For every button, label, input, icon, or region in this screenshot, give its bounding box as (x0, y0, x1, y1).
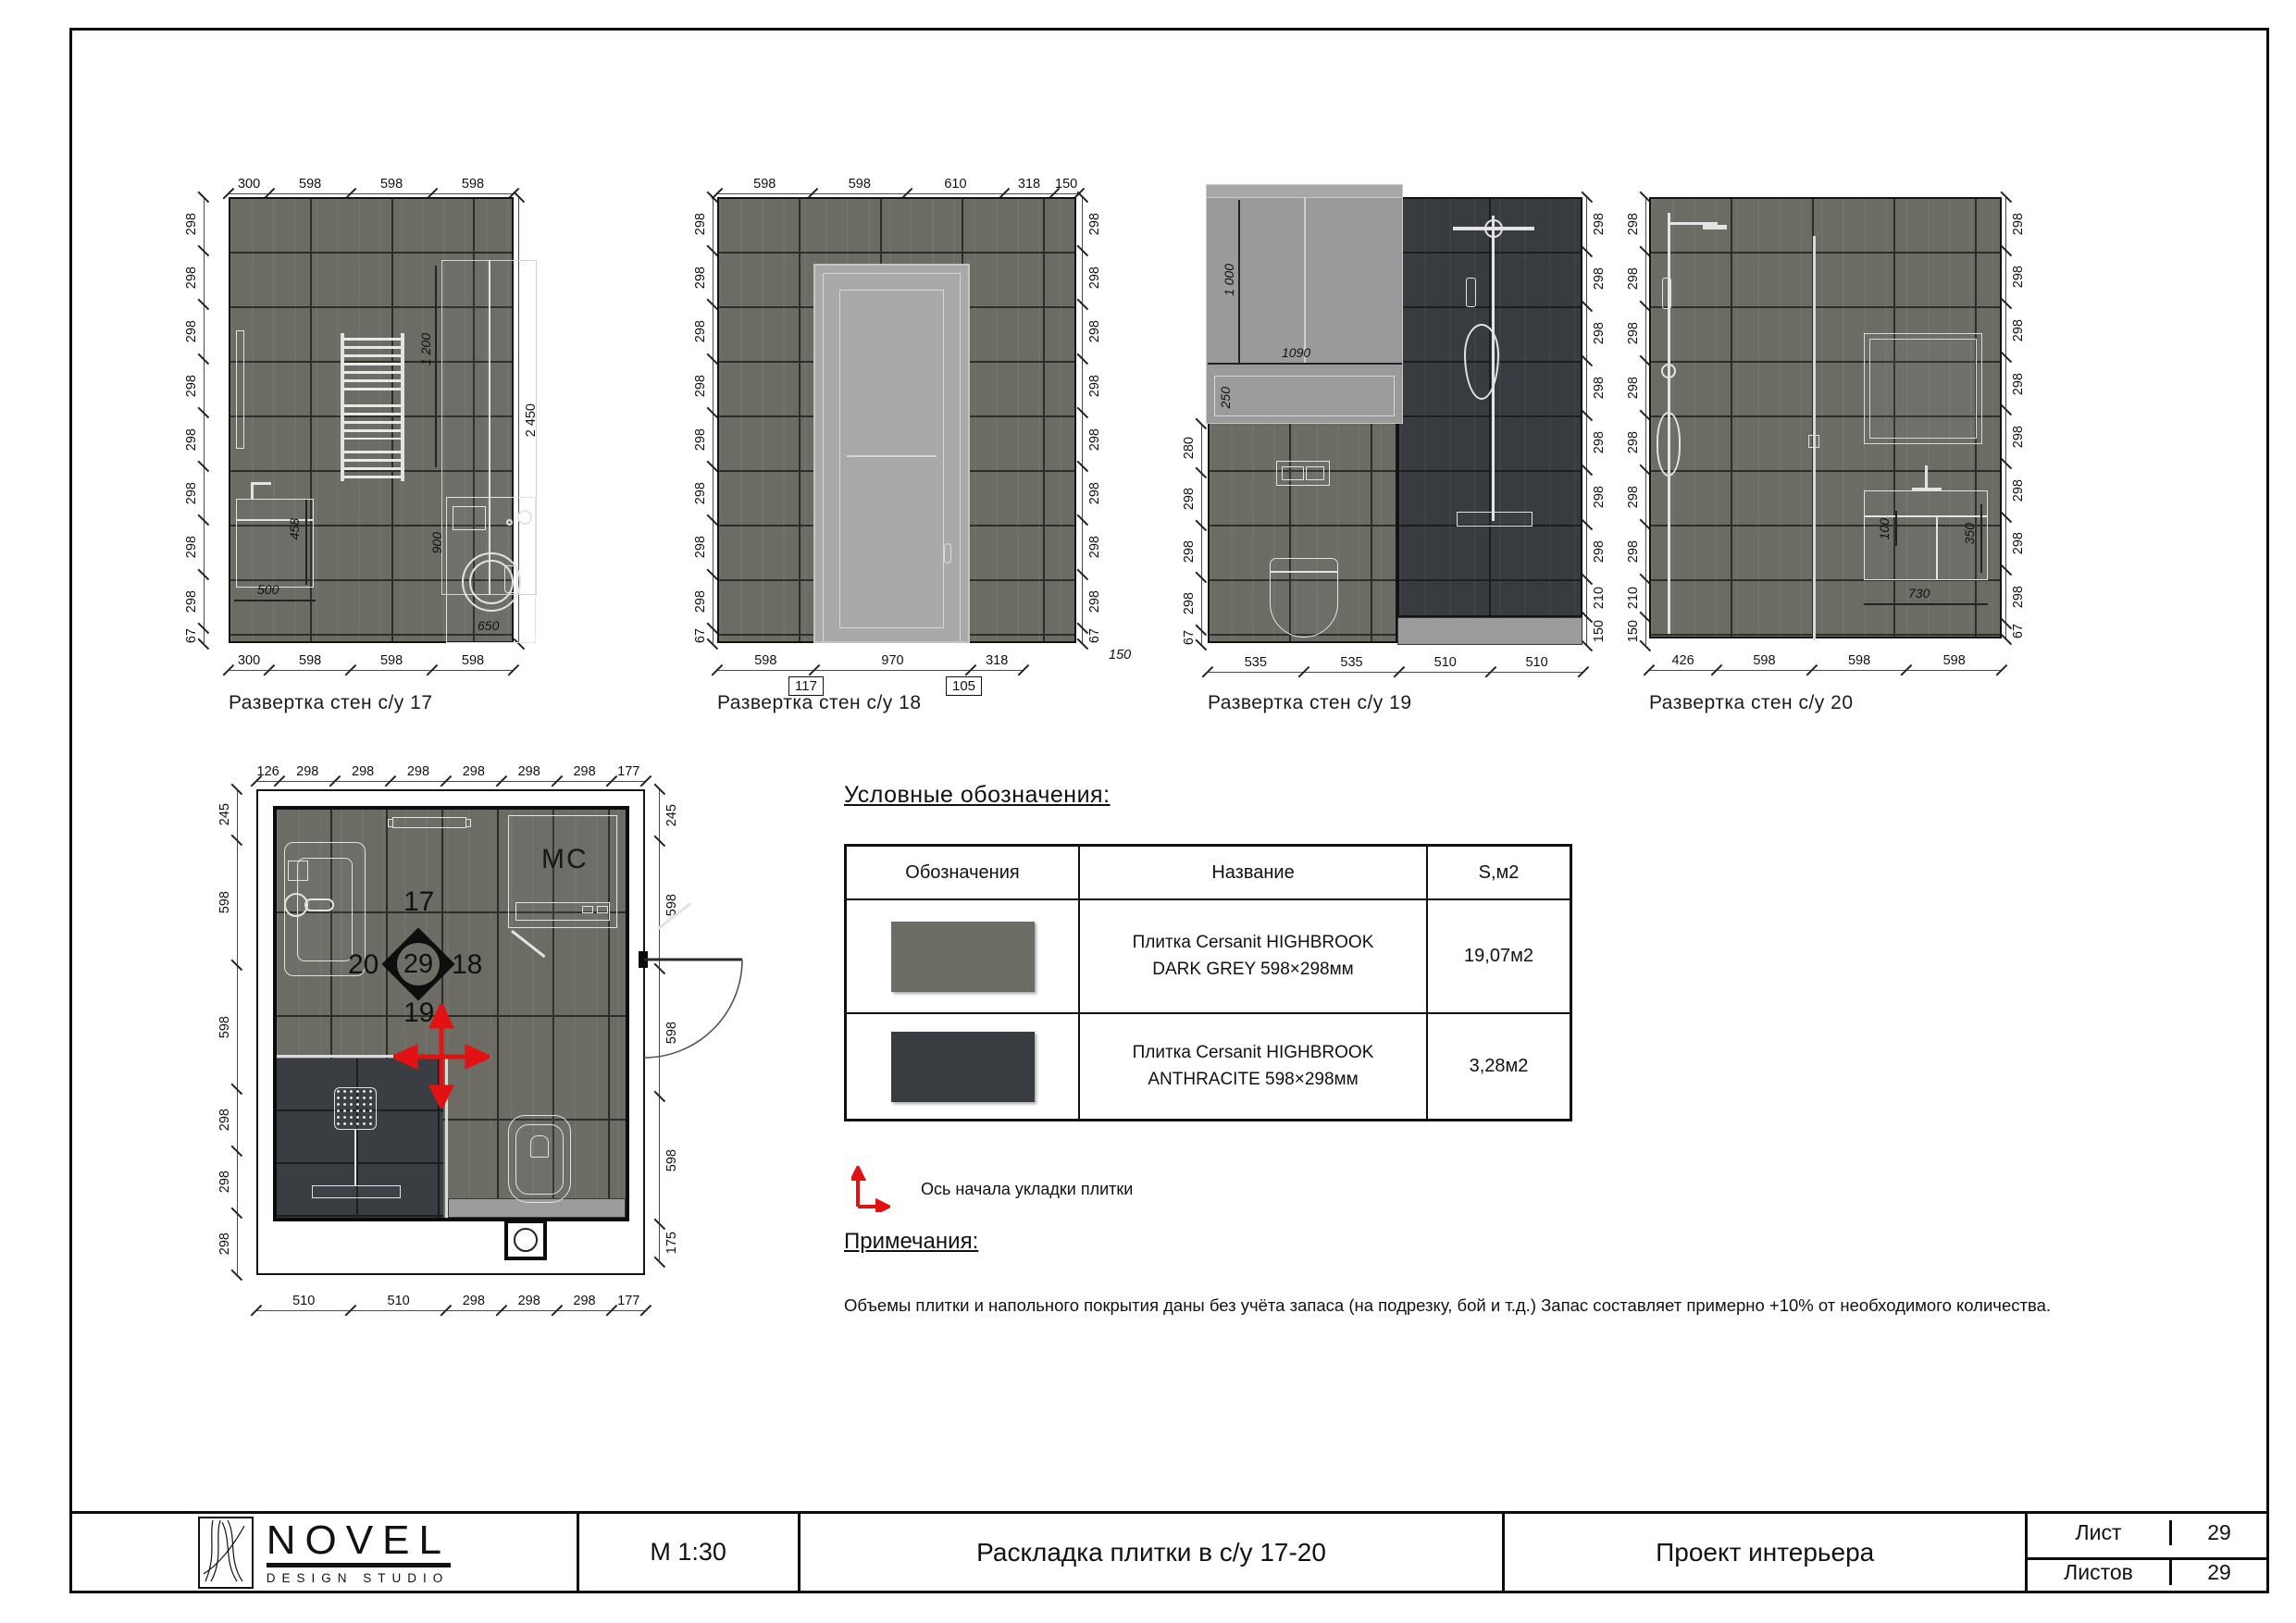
novel-logo: NOVEL DESIGN STUDIO (198, 1517, 451, 1589)
notes-text: Объемы плитки и напольного покрытия даны… (844, 1294, 2214, 1318)
door-swing-icon (639, 944, 759, 1073)
view-marker-left: 20 (348, 949, 379, 981)
legend-title: Условные обозначения: (844, 782, 1111, 809)
e17-caption: Развертка стен с/у 17 (229, 692, 433, 714)
logo-subtitle: DESIGN STUDIO (267, 1571, 451, 1585)
e20-wall-tiles (1649, 197, 2002, 638)
legend-row-swatch (846, 899, 1079, 1013)
sheets-total: 29 (2169, 1557, 2266, 1585)
title-block: NOVEL DESIGN STUDIO М 1:30 Раскладка пли… (69, 1511, 2269, 1593)
flush-plate-icon (1306, 466, 1324, 480)
legend-col-header: S,м2 (1427, 846, 1570, 899)
e17-wall-tiles (229, 197, 514, 643)
e20-bottom-dims: 426598598598 (1649, 646, 2002, 671)
legend-col-header: Название (1079, 846, 1427, 899)
e19-dim-line (1208, 363, 1402, 365)
shower-head-icon (1703, 225, 1727, 229)
novel-logo-mark (198, 1517, 254, 1589)
e20-dim-line (1895, 511, 1897, 546)
novel-logo-mark (200, 1518, 248, 1583)
axis-origin-note: Ось начала укладки плитки (921, 1180, 1133, 1199)
door-icon (847, 455, 937, 457)
e18-wall-tiles (717, 197, 1076, 643)
legend-row-area: 19,07м2 (1427, 899, 1570, 1013)
shower-head-icon (1484, 219, 1503, 238)
toilet-icon (530, 1135, 549, 1158)
e19-cabinet-height: 1 000 (1222, 264, 1236, 296)
e18-bottom-dims: 598970318 (717, 646, 1023, 671)
faucet-icon (1925, 465, 1928, 490)
drawing-sheet: 300598598598 29829829829829829829829867 … (0, 0, 2296, 1623)
e19-cabinet-width: 1090 (1282, 345, 1310, 360)
e20-caption: Развертка стен с/у 20 (1649, 692, 1854, 714)
tile-swatch-dark-grey (891, 922, 1035, 992)
view-marker-number: 29 (397, 943, 440, 985)
e17-cabinet-height: 1 200 (418, 333, 433, 365)
soap-dish-icon (288, 861, 308, 881)
e20-left-dims: 298298298298298298298210150 (1621, 197, 1646, 645)
e17-dim-line (305, 500, 307, 585)
e17-top-dims: 300598598598 (229, 169, 514, 194)
shower-mixer-icon (1457, 512, 1533, 527)
e20-dim-line (1864, 603, 1988, 605)
sink-icon (236, 499, 314, 588)
mirror-icon (1869, 339, 1977, 439)
towel-rail-icon (392, 817, 466, 828)
legend-row-name: Плитка Cersanit HIGHBROOK ANTHRACITE 598… (1079, 1013, 1427, 1120)
washing-machine-icon (515, 902, 610, 921)
towel-radiator-icon (344, 451, 401, 478)
flush-plate-icon (1282, 466, 1304, 480)
toilet-icon (1270, 558, 1338, 638)
sheet-number: 29 (2169, 1520, 2266, 1545)
plan-left-dims: 245598598298298298 (213, 789, 238, 1275)
shower-screen-handle-icon (1808, 435, 1819, 448)
towel-rail-icon (388, 819, 393, 827)
shower-head-icon (334, 1087, 377, 1130)
door-icon (813, 264, 970, 643)
sheets-label: Листов (2028, 1557, 2169, 1585)
e17-washer-height: 900 (429, 532, 444, 553)
e20-dim-line (1980, 504, 1982, 573)
linear-drain-icon (312, 1185, 401, 1198)
e19-bottom-dims: 535535510510 (1208, 648, 1582, 673)
towel-rail-icon (465, 819, 471, 827)
logo-name: NOVEL (267, 1520, 451, 1567)
door-handle-icon (944, 543, 951, 564)
sink-icon (236, 519, 314, 521)
novel-logo-text: NOVEL DESIGN STUDIO (267, 1520, 451, 1585)
washing-machine-icon (504, 565, 517, 593)
project-cell: Проект интерьера (1505, 1514, 2028, 1591)
hand-shower-icon (1662, 278, 1671, 309)
plan-top-dims: 126298298298298298298177 (256, 757, 645, 782)
scale-cell: М 1:30 (579, 1514, 800, 1591)
drawing-title-cell: Раскладка плитки в с/у 17-20 (800, 1514, 1506, 1591)
legend-row-name: Плитка Cersanit HIGHBROOK DARK GREY 598×… (1079, 899, 1427, 1013)
washing-machine-icon (453, 506, 486, 530)
washing-machine-icon (506, 519, 513, 526)
e18-caption: Развертка стен с/у 18 (717, 692, 922, 714)
washing-machine-icon (582, 906, 593, 913)
legend-col-header: Обозначения (846, 846, 1079, 899)
title-block-logo-cell: NOVEL DESIGN STUDIO (72, 1514, 579, 1591)
shower-hose-icon (1657, 412, 1681, 477)
e19-cabinet (1304, 197, 1306, 364)
washing-machine-icon (517, 510, 532, 525)
e19-dim-line (1238, 200, 1240, 363)
view-marker-up: 17 (403, 886, 434, 918)
plan-wc-outlet (504, 1220, 547, 1260)
legend-table: Обозначения Название S,м2 Плитка Cersani… (844, 844, 1572, 1121)
faucet-icon (304, 898, 334, 911)
e18-corner-150: 150 (1109, 648, 1131, 663)
e19-caption: Развертка стен с/у 19 (1208, 692, 1412, 714)
view-marker-right: 18 (452, 949, 482, 981)
e20-vanity-inset: 100 (1877, 518, 1892, 539)
e19-shelf-height: 250 (1218, 387, 1233, 408)
tile-swatch-anthracite (891, 1032, 1035, 1102)
towel-radiator-icon (344, 338, 401, 391)
vanity-icon (1864, 515, 1988, 517)
e19-wall-dark-tiles (1397, 197, 1582, 617)
faucet-icon (251, 482, 271, 485)
towel-radiator-icon (401, 333, 404, 481)
view-marker: 29 (392, 938, 444, 990)
shower-mixer-icon (1661, 364, 1676, 378)
e19-right-dims: 298298298298298298298210150 (1586, 197, 1611, 645)
vanity-icon (1936, 517, 1938, 580)
e17-bottom-dims: 300598598598 (229, 646, 514, 671)
e17-sink-height: 458 (287, 518, 302, 539)
e17-mirror-strip (236, 330, 244, 449)
plan-wc-outlet (514, 1228, 538, 1252)
towel-radiator-icon (344, 404, 401, 440)
washing-machine-icon (511, 930, 545, 958)
e18-boxed-dim-105: 105 (946, 676, 982, 696)
e20-right-dims: 29829829829829829829829867 (2005, 197, 2030, 638)
e19-cabinet (1207, 185, 1402, 198)
washing-machine-icon (597, 906, 608, 913)
hand-shower-icon (1466, 278, 1476, 307)
e19-cabinet (1206, 184, 1403, 424)
e18-right-dims: 29829829829829829829829867 (1082, 197, 1107, 643)
notes-title: Примечания: (844, 1229, 978, 1255)
e17-dim-line (234, 600, 316, 601)
sheet-number-block: Лист 29 Листов 29 (2028, 1514, 2266, 1591)
e20-vanity-height: 350 (1962, 523, 1977, 544)
toilet-icon (1270, 571, 1338, 573)
e17-washer-width: 650 (478, 618, 499, 633)
axis-origin-icon (851, 1166, 890, 1212)
e19-left-dims: 28029829829867 (1177, 424, 1202, 645)
e17-dim-line (435, 266, 437, 467)
legend-row-area: 3,28м2 (1427, 1013, 1570, 1120)
e19-floor-strip (1397, 617, 1582, 645)
door-icon (839, 290, 944, 628)
plan-bottom-dims: 510510298298298177 (256, 1286, 645, 1311)
view-marker-down: 19 (403, 997, 434, 1029)
e17-sink-width: 500 (257, 582, 279, 597)
e19-cabinet-shelf (1214, 376, 1395, 416)
washing-machine-label: МС (541, 844, 589, 875)
e18-top-dims: 598598610318150 (717, 169, 1078, 194)
e17-left-dims: 29829829829829829829829867 (180, 197, 205, 643)
legend-row-swatch (846, 1013, 1079, 1120)
e18-left-dims: 29829829829829829829829867 (689, 197, 714, 643)
shower-column-icon (354, 1130, 356, 1185)
sheet-label: Лист (2028, 1520, 2169, 1545)
e20-vanity-width: 730 (1908, 586, 1930, 601)
